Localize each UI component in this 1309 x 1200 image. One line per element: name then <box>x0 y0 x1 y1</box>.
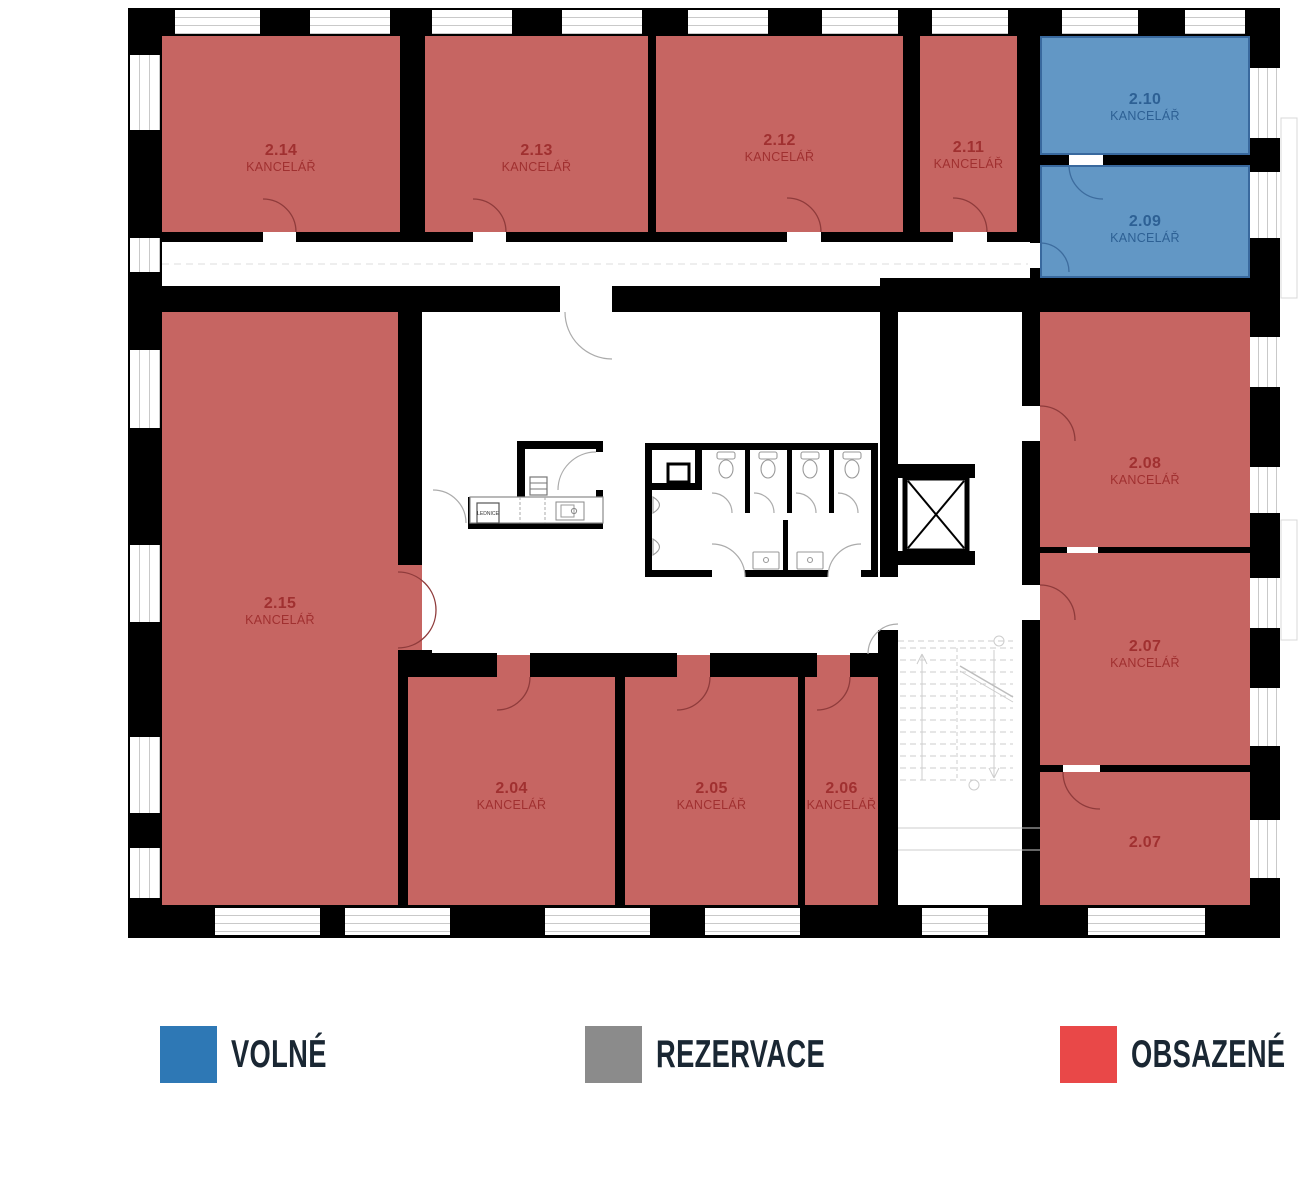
wall <box>615 677 625 905</box>
legend-swatch-obsazene <box>1060 1026 1117 1083</box>
room-type: KANCELÁŘ <box>425 160 648 174</box>
wall <box>1100 765 1250 772</box>
wall <box>398 677 408 905</box>
room-2.10[interactable]: 2.10 KANCELÁŘ <box>1040 36 1250 155</box>
window <box>1250 688 1280 746</box>
room-number: 2.15 <box>162 595 398 613</box>
wall <box>1040 155 1069 165</box>
room-type: KANCELÁŘ <box>408 798 615 812</box>
window <box>562 10 642 34</box>
room-number: 2.05 <box>625 780 798 798</box>
room-type: KANCELÁŘ <box>1042 231 1248 245</box>
kitchen-counter <box>470 477 603 523</box>
room-2.07-annex[interactable]: 2.07 <box>1040 772 1250 905</box>
wall <box>850 653 878 677</box>
room-type: KANCELÁŘ <box>625 798 798 812</box>
window <box>130 238 160 272</box>
wall <box>612 286 880 312</box>
room-2.07[interactable]: 2.07 KANCELÁŘ <box>1040 553 1250 765</box>
room-number: 2.07 <box>1040 638 1250 656</box>
wall <box>903 36 920 242</box>
room-type: KANCELÁŘ <box>805 798 878 812</box>
legend-swatch-volne <box>160 1026 217 1083</box>
wall <box>871 443 878 577</box>
legend-label-volne: VOLNÉ <box>231 1033 327 1077</box>
room-2.05[interactable]: 2.05 KANCELÁŘ <box>625 677 798 905</box>
window <box>1250 467 1280 513</box>
room-2.13[interactable]: 2.13 KANCELÁŘ <box>425 36 648 232</box>
wall <box>898 464 975 478</box>
wall <box>648 36 656 242</box>
window <box>175 10 260 34</box>
wall <box>1040 765 1063 772</box>
room-number: 2.09 <box>1042 213 1248 231</box>
wall <box>162 232 263 242</box>
legend-swatch-rezervace <box>585 1026 642 1083</box>
window <box>688 10 768 34</box>
room-number: 2.13 <box>425 142 648 160</box>
wall <box>1040 547 1067 553</box>
window <box>1250 578 1280 628</box>
wall <box>1022 441 1040 585</box>
room-2.15-door-recess <box>398 565 422 650</box>
wall <box>296 232 473 242</box>
wall <box>645 443 878 450</box>
urinal-icon <box>653 497 660 555</box>
room-2.14[interactable]: 2.14 KANCELÁŘ <box>162 36 400 232</box>
legend-item-obsazene: OBSAZENÉ <box>1060 1026 1309 1083</box>
wall <box>1098 547 1250 553</box>
room-number: 2.08 <box>1040 455 1250 473</box>
door-recess <box>817 655 850 677</box>
window <box>1250 337 1280 387</box>
window <box>922 908 988 935</box>
window <box>215 908 320 935</box>
wall <box>517 441 603 449</box>
wall <box>468 523 603 529</box>
wall <box>1017 36 1040 242</box>
wall <box>400 36 425 242</box>
legend-label-rezervace: REZERVACE <box>656 1033 825 1077</box>
window <box>130 848 160 898</box>
room-number: 2.11 <box>920 139 1017 157</box>
wall <box>861 570 878 577</box>
window <box>822 10 898 34</box>
room-number: 2.12 <box>656 132 903 150</box>
legend-item-rezervace: REZERVACE <box>585 1026 897 1083</box>
wall <box>878 630 898 905</box>
wall <box>1022 312 1040 406</box>
window <box>130 737 160 813</box>
fridge-label: LEDNICE <box>477 511 499 517</box>
room-type: KANCELÁŘ <box>920 157 1017 171</box>
window <box>1250 172 1280 238</box>
wall <box>408 653 497 677</box>
wall <box>783 520 788 577</box>
window <box>432 10 512 34</box>
exterior-sill <box>1281 118 1297 640</box>
wall <box>645 443 652 577</box>
room-number: 2.07 <box>1040 834 1250 852</box>
window <box>345 908 450 935</box>
wall <box>745 449 750 513</box>
wall <box>829 449 834 513</box>
room-2.09[interactable]: 2.09 KANCELÁŘ <box>1040 165 1250 278</box>
wall <box>787 449 792 513</box>
elevator-icon <box>905 478 967 551</box>
window <box>1062 10 1138 34</box>
room-number: 2.10 <box>1042 91 1248 109</box>
wall <box>880 278 1250 312</box>
wall <box>710 653 817 677</box>
wall <box>596 441 603 452</box>
legend-label-obsazene: OBSAZENÉ <box>1131 1033 1285 1077</box>
wall <box>517 441 525 497</box>
wall <box>162 286 560 312</box>
room-2.08[interactable]: 2.08 KANCELÁŘ <box>1040 312 1250 547</box>
window <box>545 908 650 935</box>
window <box>1250 820 1280 878</box>
duct-shaft <box>668 464 689 482</box>
sink-icon <box>753 552 823 569</box>
window <box>130 55 160 130</box>
room-2.15[interactable]: 2.15 KANCELÁŘ <box>162 312 398 905</box>
room-type: KANCELÁŘ <box>162 613 398 627</box>
window <box>130 545 160 622</box>
floor-plan-page: 2.14 KANCELÁŘ 2.13 KANCELÁŘ 2.12 KANCELÁ… <box>0 0 1309 1200</box>
window <box>705 908 800 935</box>
window <box>1250 68 1280 138</box>
room-2.04[interactable]: 2.04 KANCELÁŘ <box>408 677 615 905</box>
window <box>1088 908 1205 935</box>
room-2.06[interactable]: 2.06 KANCELÁŘ <box>805 677 878 905</box>
wall <box>987 232 1040 242</box>
room-number: 2.04 <box>408 780 615 798</box>
window <box>932 10 1008 34</box>
room-number: 2.14 <box>162 142 400 160</box>
room-type: KANCELÁŘ <box>656 150 903 164</box>
wall <box>645 570 712 577</box>
door-recess <box>497 655 530 677</box>
room-2.11[interactable]: 2.11 KANCELÁŘ <box>920 36 1017 232</box>
room-type: KANCELÁŘ <box>162 160 400 174</box>
wall <box>530 653 677 677</box>
wall <box>798 677 805 905</box>
door-recess <box>677 655 710 677</box>
wall <box>398 312 422 565</box>
wall <box>645 483 702 490</box>
wall <box>1022 620 1040 905</box>
stairs-icon <box>898 636 1040 850</box>
room-type: KANCELÁŘ <box>1040 656 1250 670</box>
wall <box>506 232 787 242</box>
room-type: KANCELÁŘ <box>1040 473 1250 487</box>
window <box>310 10 390 34</box>
legend-item-volne: VOLNÉ <box>160 1026 368 1083</box>
wall <box>880 312 898 577</box>
wall <box>821 232 953 242</box>
room-number: 2.06 <box>805 780 878 798</box>
window <box>130 350 160 428</box>
fridge-icon: LEDNICE <box>477 503 499 523</box>
room-type: KANCELÁŘ <box>1042 109 1248 123</box>
window <box>1185 10 1245 34</box>
room-2.12[interactable]: 2.12 KANCELÁŘ <box>656 36 903 232</box>
wall <box>898 551 975 565</box>
wall <box>1103 155 1250 165</box>
